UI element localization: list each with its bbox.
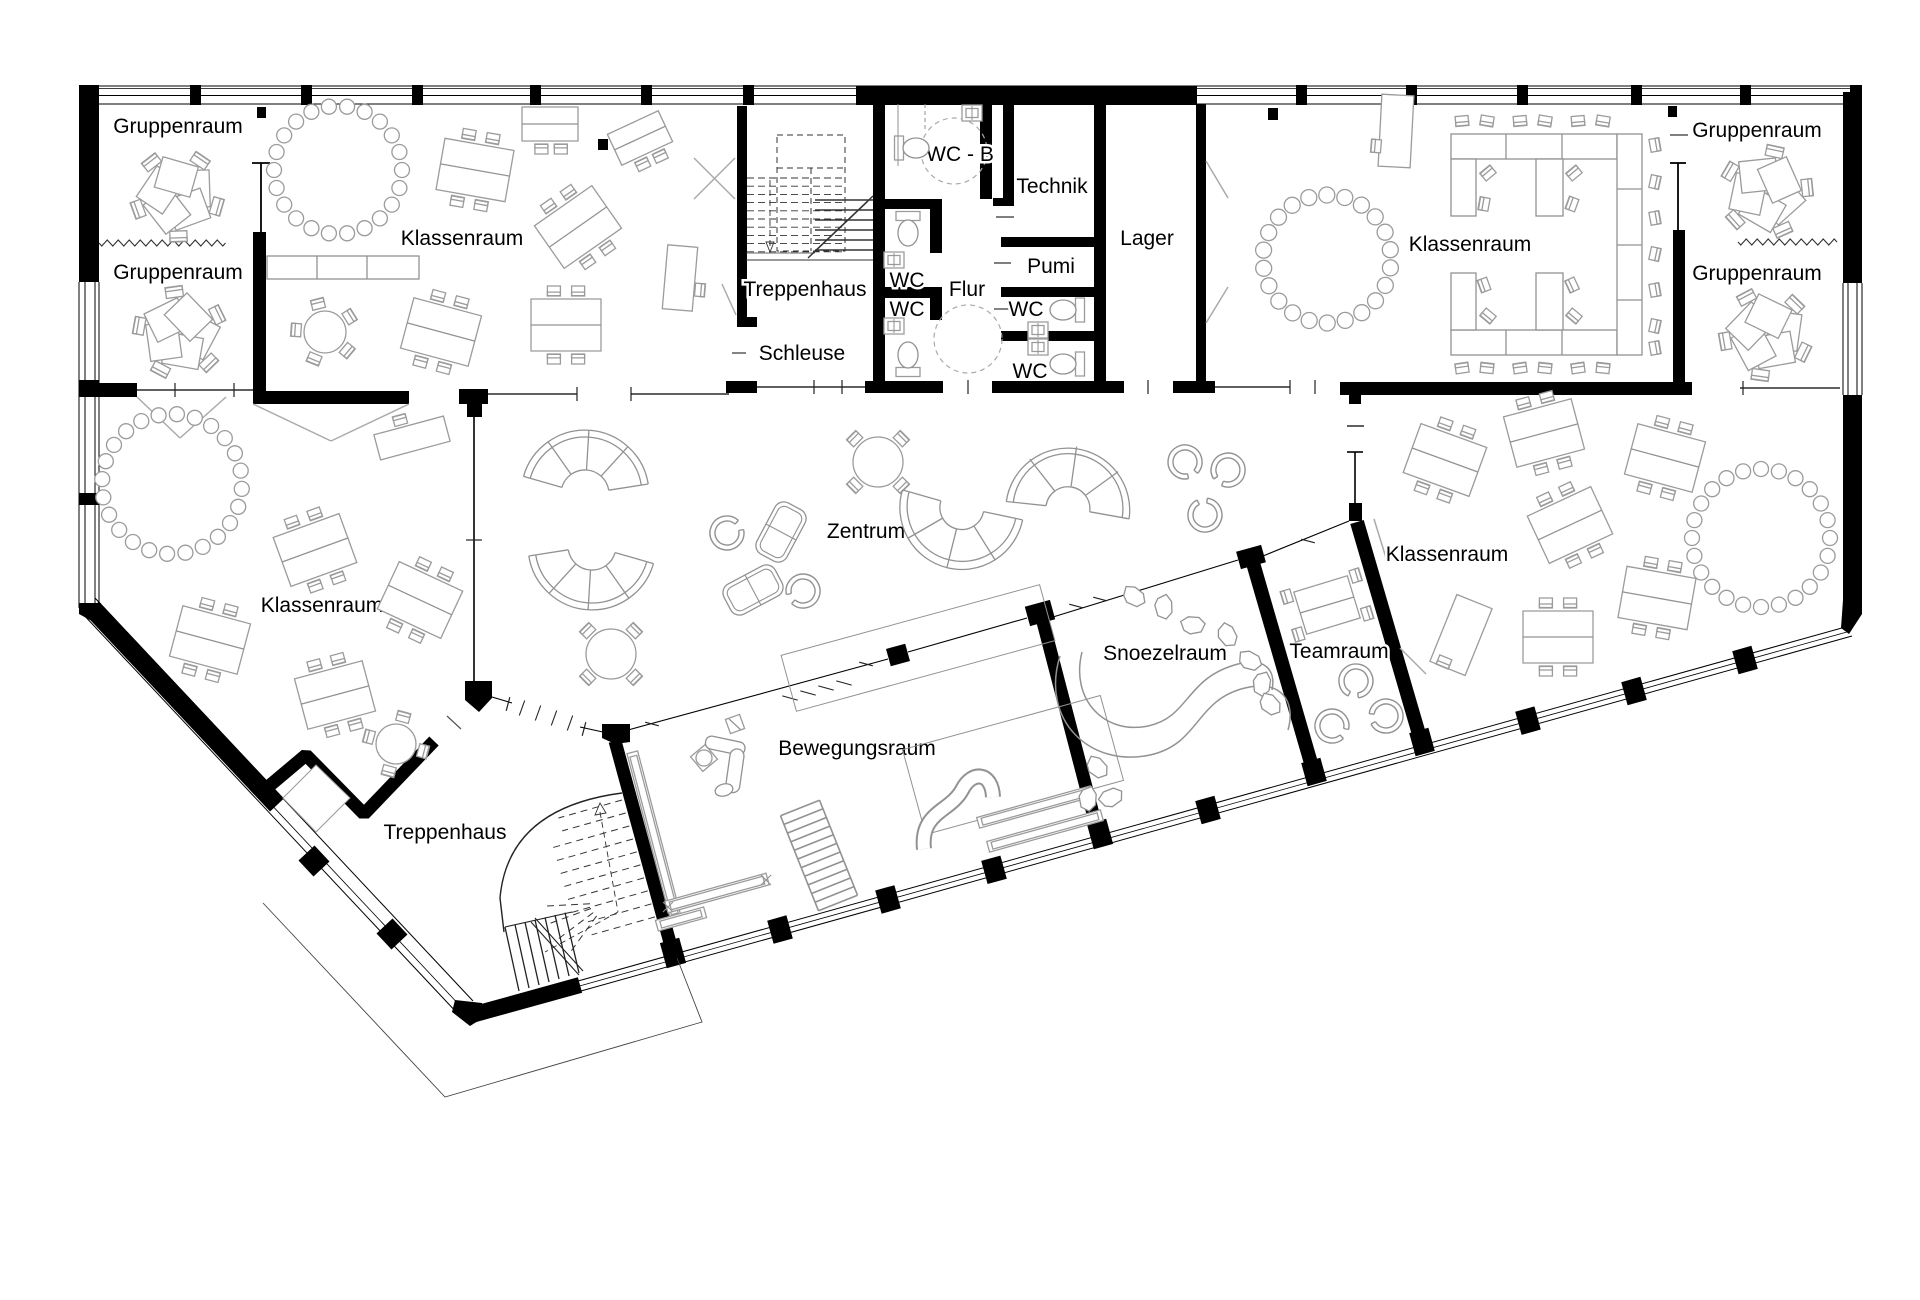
svg-text:Bewegungsraum: Bewegungsraum	[778, 737, 936, 760]
svg-text:Zentrum: Zentrum	[827, 520, 905, 543]
svg-text:WC - B: WC - B	[926, 143, 994, 166]
svg-text:Gruppenraum: Gruppenraum	[113, 115, 243, 138]
svg-text:Klassenraum: Klassenraum	[1409, 233, 1532, 256]
svg-text:Pumi: Pumi	[1027, 255, 1075, 278]
svg-text:WC: WC	[1009, 298, 1044, 321]
svg-text:WC: WC	[890, 269, 925, 292]
svg-text:WC: WC	[1013, 360, 1048, 383]
svg-text:Snoezelraum: Snoezelraum	[1103, 642, 1227, 665]
svg-text:Technik: Technik	[1016, 175, 1088, 198]
svg-text:Klassenraum: Klassenraum	[261, 594, 384, 617]
svg-text:Treppenhaus: Treppenhaus	[384, 821, 507, 844]
svg-text:Schleuse: Schleuse	[759, 342, 845, 365]
svg-text:Treppenhaus: Treppenhaus	[744, 278, 867, 301]
svg-text:Gruppenraum: Gruppenraum	[1692, 119, 1822, 142]
svg-text:Lager: Lager	[1120, 227, 1174, 250]
svg-text:Klassenraum: Klassenraum	[1386, 543, 1509, 566]
svg-text:Flur: Flur	[949, 278, 985, 301]
svg-text:Teamraum: Teamraum	[1289, 640, 1388, 663]
svg-text:Klassenraum: Klassenraum	[401, 227, 524, 250]
svg-text:Gruppenraum: Gruppenraum	[1692, 262, 1822, 285]
svg-text:Gruppenraum: Gruppenraum	[113, 261, 243, 284]
